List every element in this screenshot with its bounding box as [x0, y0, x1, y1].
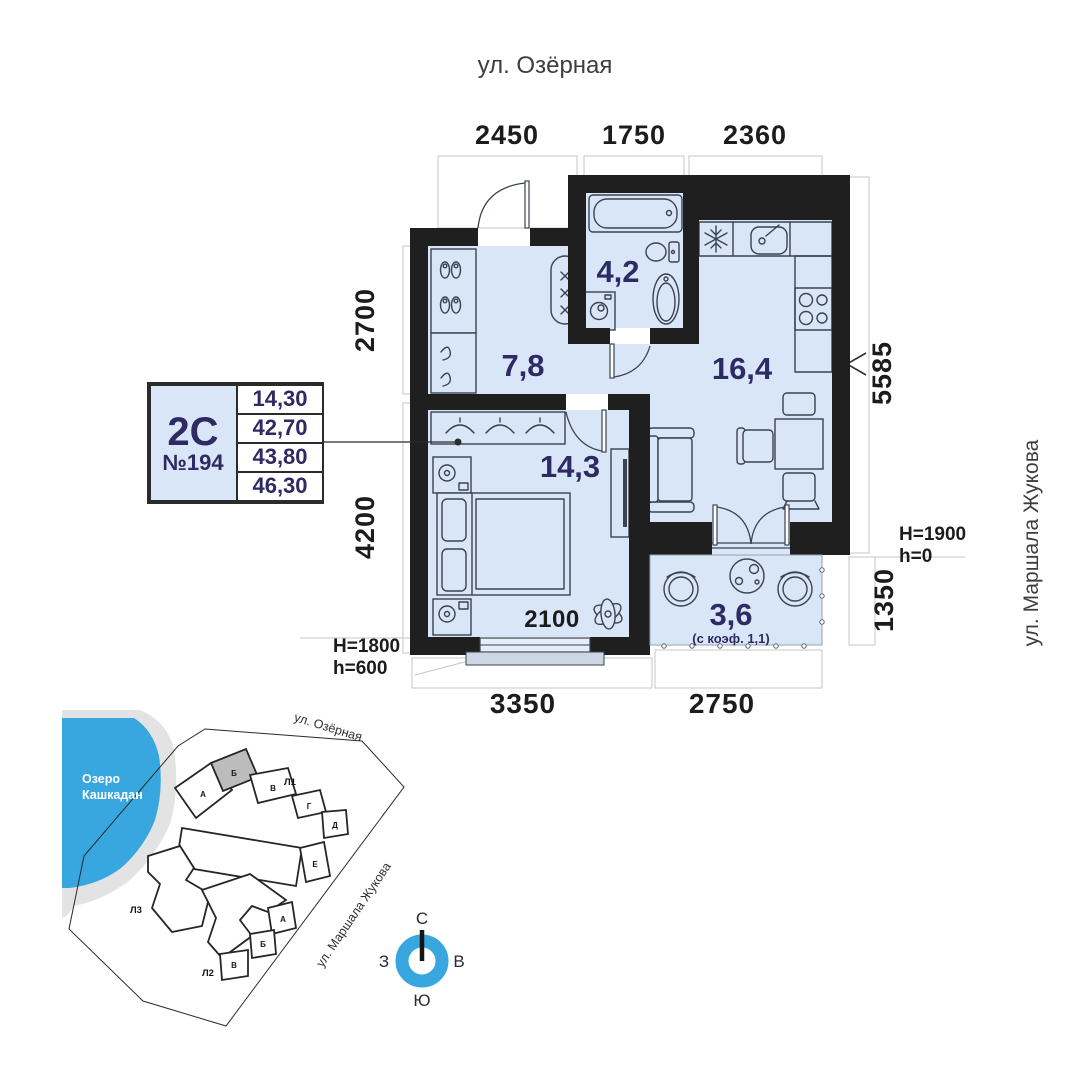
building-label-l1: Л1	[284, 777, 297, 788]
hall-bench	[431, 333, 476, 393]
compass-north: С	[416, 909, 428, 928]
building-label-l3: Л3	[130, 905, 142, 916]
section-label: Б	[231, 769, 237, 778]
area-balcony-note: (с коэф. 1,1)	[692, 631, 769, 646]
dim-right-lower: 1350	[869, 568, 899, 632]
section-label: В	[270, 784, 276, 793]
bed	[437, 493, 570, 595]
street-label-right: ул. Маршала Жукова	[1020, 439, 1043, 646]
entrance-door	[478, 181, 529, 228]
bathtub	[589, 195, 682, 232]
dim-bottom-left: 3350	[490, 688, 556, 719]
dim-top-2: 1750	[602, 120, 666, 150]
dim-top-1: 2450	[475, 120, 539, 150]
lake-name-line1: Озеро	[82, 772, 120, 786]
bedroom-window	[466, 638, 604, 665]
area-bathroom: 4,2	[596, 254, 639, 289]
dim-right-upper: 5585	[867, 341, 897, 405]
shoe-cabinet	[431, 249, 476, 333]
balcony-door-opening	[712, 522, 790, 555]
lake-name-line2: Кашкадан	[82, 788, 143, 802]
dim-left-upper: 2700	[350, 288, 380, 352]
tv-panel	[611, 449, 629, 537]
street-label-top: ул. Озёрная	[478, 52, 613, 79]
height-label-left-1: H=1800	[333, 636, 400, 657]
map-street-top: ул. Озёрная	[293, 710, 364, 744]
section-label: Д	[332, 821, 338, 830]
compass: С В З Ю	[379, 909, 465, 1010]
dim-bottom-right: 2750	[689, 688, 755, 719]
height-label-right-1: H=1900	[899, 524, 966, 545]
card-value: 14,30	[252, 386, 307, 411]
area-kitchen-living: 16,4	[712, 351, 773, 386]
apartment-number: №194	[162, 450, 224, 475]
building-label-l2: Л2	[202, 968, 214, 979]
section-label: Б	[260, 940, 266, 949]
area-bedroom: 14,3	[540, 449, 600, 484]
card-connector-dot	[455, 439, 462, 446]
card-value: 46,30	[252, 473, 307, 498]
dim-left-lower: 4200	[350, 495, 380, 559]
nightstand	[433, 457, 471, 493]
height-label-right-2: h=0	[899, 546, 932, 567]
section-label: Е	[312, 860, 318, 869]
building-l1	[175, 749, 348, 886]
area-balcony: 3,6	[709, 597, 752, 632]
card-value: 43,80	[252, 444, 307, 469]
sofa	[648, 428, 694, 512]
site-map: Озеро Кашкадан ул. Озёрная ул. Маршала Ж…	[62, 710, 404, 1026]
apartment-type: 2С	[167, 410, 218, 454]
building-l2	[202, 874, 296, 980]
section-label: В	[231, 961, 237, 970]
nightstand	[433, 599, 471, 635]
floorplan-canvas: ул. Озёрная ул. Маршала Жукова 2450 1750…	[0, 0, 1080, 1080]
height-label-left-2: h=600	[333, 658, 387, 679]
section-label: Г	[307, 802, 312, 811]
dim-window: 2100	[524, 606, 579, 633]
toilet	[646, 242, 679, 262]
compass-west: З	[379, 952, 389, 971]
card-value: 42,70	[252, 415, 307, 440]
area-hallway: 7,8	[501, 348, 544, 383]
washing-machine	[584, 292, 615, 330]
compass-south: Ю	[413, 991, 430, 1010]
compass-east: В	[453, 952, 464, 971]
section-label: А	[200, 790, 206, 799]
dim-top-3: 2360	[723, 120, 787, 150]
section-label: А	[280, 915, 286, 924]
wardrobe	[431, 412, 565, 444]
bath-sink	[653, 274, 679, 324]
